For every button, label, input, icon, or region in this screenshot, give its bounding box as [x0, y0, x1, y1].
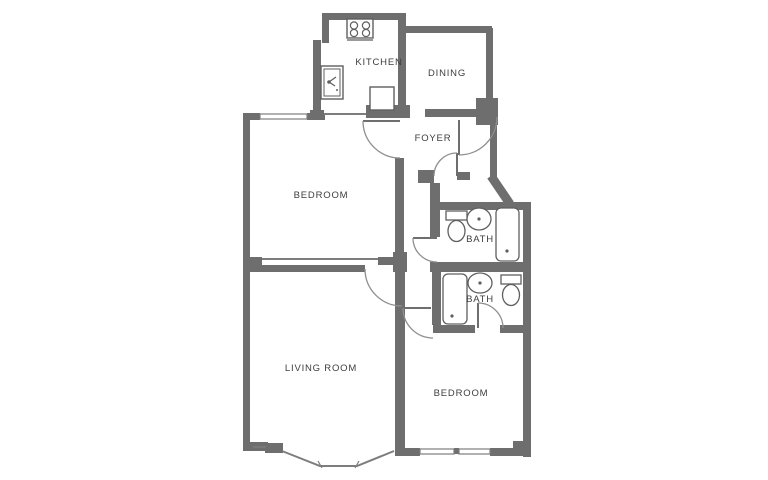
kitchen-sink-icon: [321, 66, 343, 99]
bath-lower-door: [478, 303, 503, 328]
bathroom-sink-icon: [468, 273, 492, 293]
room-label-living-room: LIVING ROOM: [285, 363, 357, 374]
bathtub-icon: [443, 274, 467, 324]
room-label-bath-upper: BATH: [466, 234, 494, 245]
bathroom-sink-icon: [467, 208, 491, 230]
hall-door: [434, 153, 457, 176]
room-label-kitchen: KITCHEN: [355, 57, 402, 68]
room-label-bedroom-upper: BEDROOM: [294, 190, 349, 201]
room-label-bedroom-lower: BEDROOM: [434, 388, 489, 399]
room-label-bath-lower: BATH: [466, 294, 494, 305]
window: [260, 114, 307, 119]
floor-plan-canvas: KITCHEN DINING FOYER BEDROOM BATH BATH L…: [0, 0, 768, 480]
window: [420, 449, 454, 454]
bedroom-lower-door: [403, 308, 433, 338]
room-label-foyer: FOYER: [415, 133, 452, 144]
bay-window: [282, 451, 394, 466]
bath-upper-door: [413, 238, 437, 262]
toilet-icon: [501, 275, 521, 306]
toilet-icon: [446, 211, 467, 242]
window: [459, 449, 490, 454]
stove-icon: [347, 19, 373, 41]
floor-plan-svg: KITCHEN DINING FOYER BEDROOM BATH BATH L…: [0, 0, 768, 480]
diagonal-wall: [491, 176, 510, 204]
bedroom-upper-door: [363, 121, 400, 158]
counter-appliance-icon: [370, 87, 394, 110]
room-label-dining: DINING: [428, 68, 466, 79]
bathtub-icon: [496, 208, 519, 261]
